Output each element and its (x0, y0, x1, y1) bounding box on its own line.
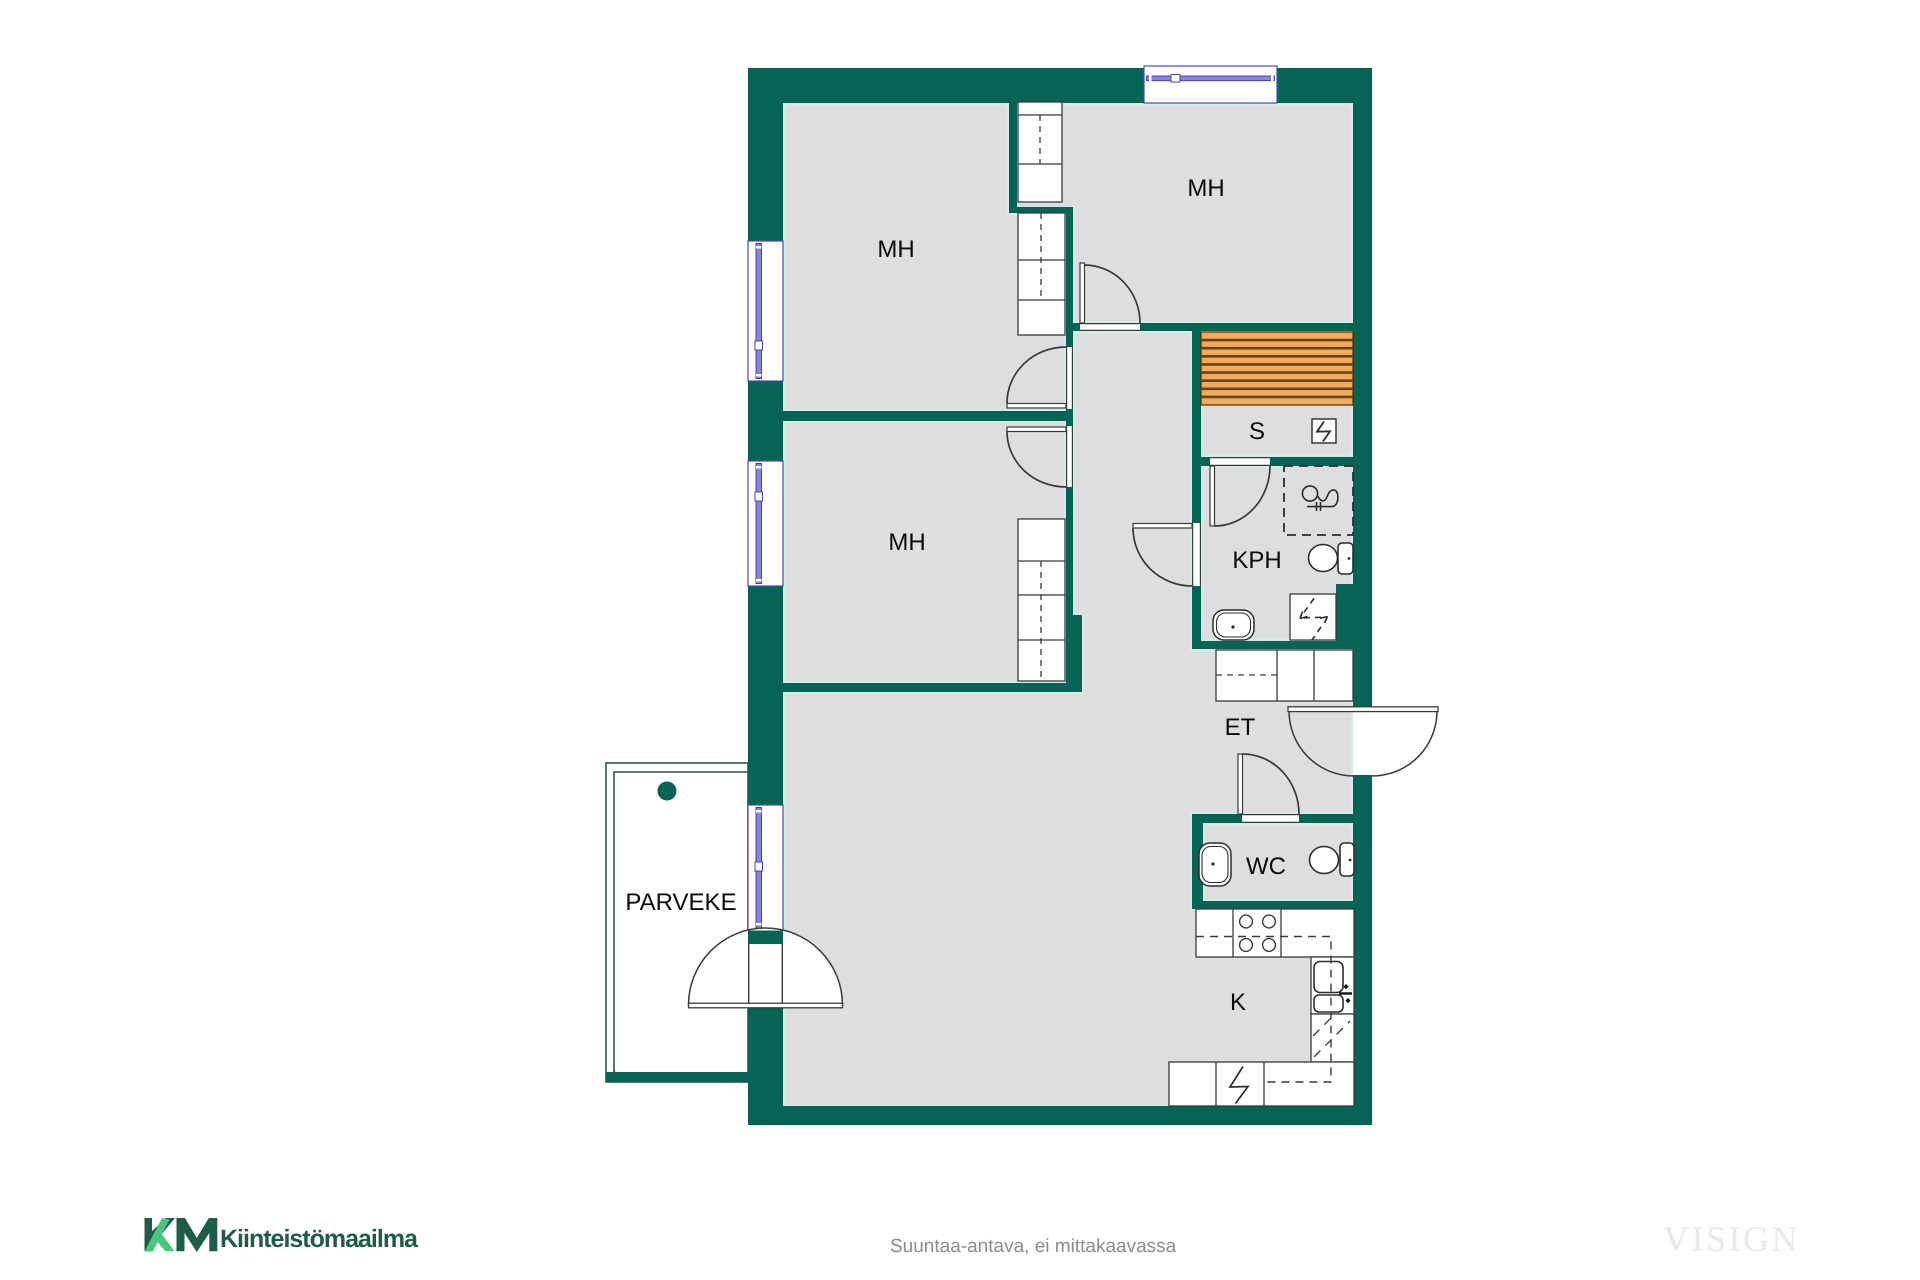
svg-text:PARVEKE: PARVEKE (625, 889, 736, 916)
svg-text:ET: ET (1225, 714, 1256, 741)
svg-text:MH: MH (1187, 175, 1224, 202)
svg-text:VISIGN: VISIGN (1663, 1219, 1800, 1259)
svg-text:K: K (1230, 989, 1246, 1016)
svg-text:MH: MH (888, 529, 925, 556)
svg-text:S: S (1249, 418, 1265, 445)
svg-text:KPH: KPH (1232, 547, 1281, 574)
svg-text:WC: WC (1246, 853, 1286, 880)
svg-text:MH: MH (877, 236, 914, 263)
svg-text:Kiinteistömaailma: Kiinteistömaailma (220, 1225, 419, 1253)
svg-text:Suuntaa-antava, ei mittakaavas: Suuntaa-antava, ei mittakaavassa (890, 1236, 1177, 1257)
